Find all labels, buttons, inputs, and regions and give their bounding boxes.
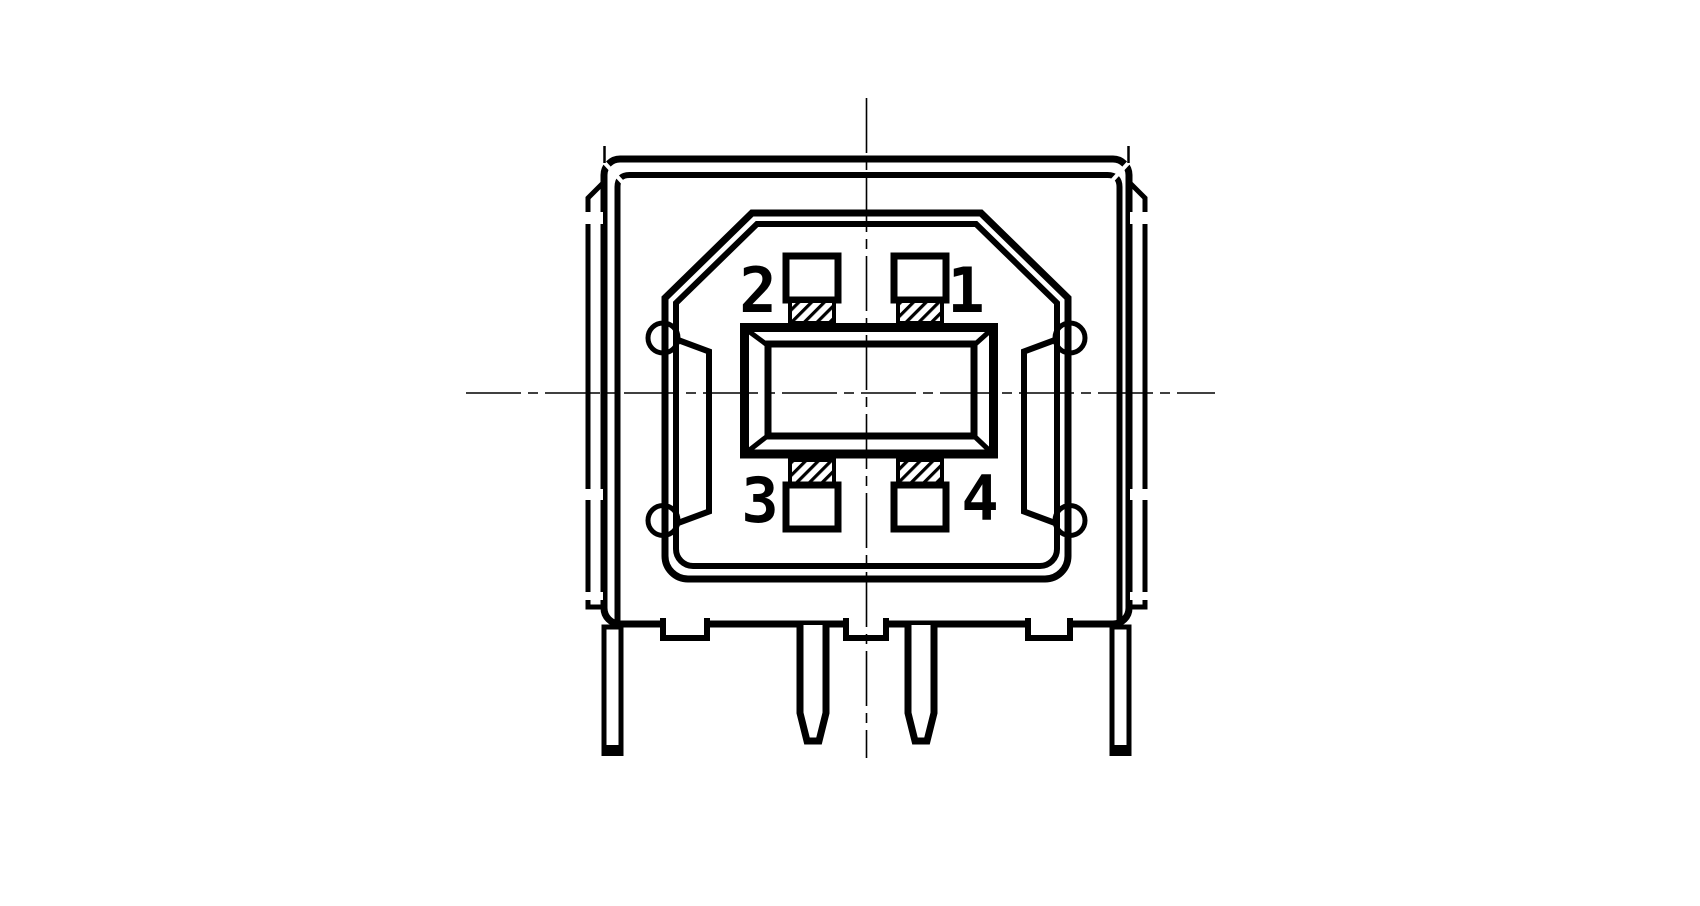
pin-label-3: 3 bbox=[741, 464, 778, 537]
pin-label-2: 2 bbox=[739, 254, 776, 327]
contact-pin-3-body bbox=[786, 485, 838, 529]
usb-b-connector-front-view: 2 1 3 4 bbox=[0, 0, 1700, 906]
contact-pin-4-body bbox=[894, 485, 946, 529]
shell-leg-right-tip bbox=[1110, 745, 1132, 756]
pin-label-4: 4 bbox=[961, 462, 998, 535]
flange-left-outline bbox=[588, 183, 603, 607]
contact-pin-2 bbox=[786, 256, 838, 323]
usb-b-connector-drawing-canvas: 2 1 3 4 bbox=[0, 0, 1700, 906]
contact-pin-1-body bbox=[894, 256, 946, 300]
contact-pin-3 bbox=[786, 460, 838, 529]
contact-pin-3-hatch bbox=[790, 460, 834, 484]
bottom-tab-left bbox=[663, 618, 707, 638]
flange-left-notch-mid bbox=[585, 489, 603, 500]
contact-pin-1-hatch bbox=[898, 301, 942, 323]
shell-leg-right-outline bbox=[1112, 627, 1129, 751]
contact-pin-2-body bbox=[786, 256, 838, 300]
shell-leg-left bbox=[602, 627, 624, 756]
bottom-tab-right bbox=[1028, 618, 1070, 638]
shell-leg-right bbox=[1110, 627, 1132, 756]
solder-pin-right bbox=[908, 625, 934, 741]
contact-pin-4-hatch bbox=[898, 460, 942, 484]
solder-pin-left bbox=[800, 625, 826, 741]
flange-right-notch-bottom bbox=[1130, 592, 1148, 600]
contact-pin-2-hatch bbox=[790, 301, 834, 323]
contact-pin-1 bbox=[894, 256, 946, 323]
flange-right-notch-mid bbox=[1130, 489, 1148, 500]
shell-leg-left-outline bbox=[604, 627, 621, 751]
flange-left-notch-bottom bbox=[585, 592, 603, 600]
pin-label-1: 1 bbox=[947, 254, 984, 327]
mounting-flange-right bbox=[1130, 183, 1148, 607]
shell-leg-left-tip bbox=[602, 745, 624, 756]
mounting-flange-left bbox=[585, 183, 603, 607]
flange-right-outline bbox=[1130, 183, 1145, 607]
flange-right-notch-top bbox=[1130, 212, 1148, 224]
contact-pin-4 bbox=[894, 460, 946, 529]
flange-left-notch-top bbox=[585, 212, 603, 224]
center-boss-inner bbox=[768, 344, 974, 436]
center-boss bbox=[745, 328, 994, 455]
